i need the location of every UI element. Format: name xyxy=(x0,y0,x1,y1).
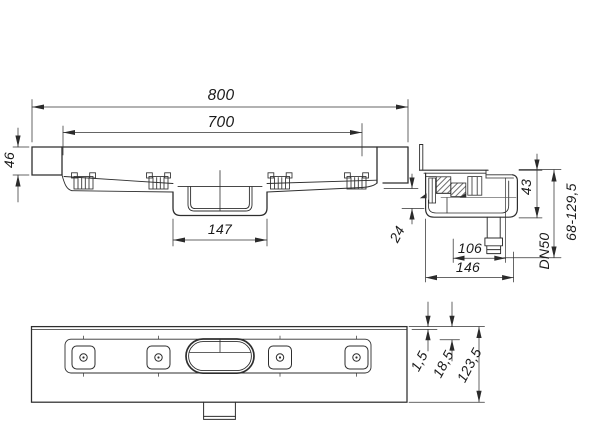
dimension-24 xyxy=(384,174,424,224)
dim-outlet-offset: 106 xyxy=(458,240,482,256)
drain-opening xyxy=(186,339,254,373)
outlet-stub xyxy=(204,402,236,419)
dim-end-height: 46 xyxy=(1,152,17,168)
dim-outlet-size: DN50 xyxy=(536,233,552,270)
channel-section-cut xyxy=(420,177,482,203)
bottom-view xyxy=(32,327,408,420)
drawing-linework xyxy=(0,0,600,424)
dim-body-depth: 146 xyxy=(456,259,480,275)
outlet-pipe xyxy=(485,217,503,253)
dim-installation-height: 68-129,5 xyxy=(563,183,579,241)
dim-sump-length: 147 xyxy=(208,221,232,237)
dim-body-height: 43 xyxy=(518,179,534,195)
dim-grate-length: 700 xyxy=(208,114,235,132)
technical-drawing: 800 700 46 147 24 43 68-129,5 DN50 106 1… xyxy=(0,0,600,424)
front-view xyxy=(32,147,408,216)
dim-total-length: 800 xyxy=(208,87,235,105)
